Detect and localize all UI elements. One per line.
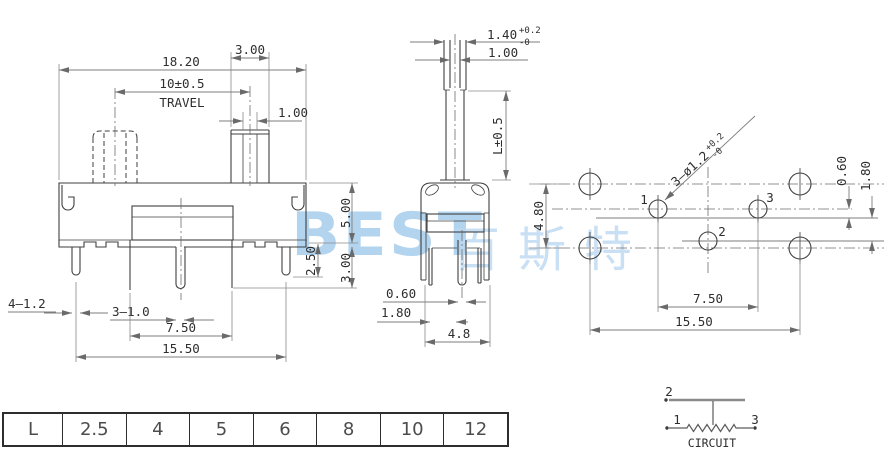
- dim-front-pin-outer-length: 2.50: [293, 244, 323, 277]
- callout-front-corner-pins: 4—1.2: [8, 296, 108, 313]
- slide-switch-dimension-drawing: BEST 百斯特: [0, 0, 888, 453]
- front-view: 18.20 3.00 10±0.5 TRAVEL 1.00: [8, 42, 358, 362]
- callout-front-middle-pins: 3—1.0: [110, 304, 214, 320]
- side-view: 1.40 +0.2 -0 1.00 L±0.5 0.60: [377, 26, 541, 347]
- dim-front-middle-pin-span-text: 7.50: [166, 320, 196, 335]
- dim-front-slot-width-text: 1.00: [278, 105, 308, 120]
- circuit-diagram: 2 1 3 CIRCUIT: [664, 384, 758, 450]
- pcb-pin1-label: 1: [640, 192, 648, 207]
- dim-front-corner-pin-span-text: 15.50: [162, 341, 200, 356]
- front-slider-block: [132, 206, 233, 240]
- dim-side-pin-width-text: 0.60: [386, 286, 416, 301]
- table-value-3: 5: [190, 414, 254, 445]
- dim-front-body-height-text: 5.00: [338, 198, 353, 228]
- dim-side-pin-offset: 1.80: [377, 305, 468, 322]
- front-knob: [231, 130, 269, 183]
- circuit-resistive-element: [669, 425, 753, 432]
- dim-side-stem-width-tol-upper: +0.2: [519, 26, 541, 36]
- pcb-terminal-holes: [649, 195, 767, 250]
- dim-pcb-offset-small: 0.60: [834, 156, 849, 230]
- pcb-pin3-label: 3: [766, 190, 774, 205]
- pcb-pin2-label: 2: [718, 224, 726, 239]
- dim-front-pin-inner-length: 3.00: [233, 247, 357, 288]
- pcb-view: 1 3 2 3—ø1.2 +0.2 -0 4.80 0.60: [529, 116, 884, 335]
- dim-side-pin-offset-text: 1.80: [381, 305, 411, 320]
- dim-side-body-depth: 4.8: [425, 285, 490, 347]
- dim-side-stem-height-text: L±0.5: [490, 117, 505, 155]
- circuit-caption: CIRCUIT: [688, 436, 737, 450]
- dim-side-stem-width: 1.40 +0.2 -0: [410, 26, 541, 48]
- front-left-pin: [72, 247, 80, 275]
- callout-front-middle-pins-text: 3—1.0: [112, 304, 150, 319]
- pcb-mounting-holes: [579, 168, 811, 264]
- front-body-outline: [59, 183, 306, 241]
- table-value-7: 12: [444, 414, 507, 445]
- dim-side-stem-slot-text: 1.00: [488, 45, 518, 60]
- callout-front-corner-pins-text: 4—1.2: [8, 296, 46, 311]
- dim-front-slot-width: 1.00: [219, 105, 308, 130]
- dim-side-stem-height: L±0.5: [468, 91, 511, 180]
- table-value-5: 8: [317, 414, 381, 445]
- dim-side-pin-width: 0.60: [383, 286, 486, 302]
- circuit-terminal-3-dot: [753, 426, 756, 429]
- dim-front-body-width-text: 18.20: [162, 54, 200, 69]
- circuit-terminal-3-label: 3: [751, 412, 759, 427]
- front-knob-phantom: [93, 131, 137, 183]
- dim-pcb-mount-span-text: 15.50: [675, 314, 713, 329]
- callout-pcb-hole-diameter-text: 3—ø1.2: [668, 148, 712, 189]
- dim-front-pin-outer-length-text: 2.50: [303, 246, 318, 276]
- callout-pcb-hole-diameter: 3—ø1.2 +0.2 -0: [665, 116, 755, 200]
- table-value-1: 2.5: [63, 414, 127, 445]
- front-right-pin: [282, 247, 290, 275]
- dim-side-stem-width-text: 1.40: [487, 27, 517, 42]
- dim-front-travel: 10±0.5 TRAVEL: [115, 76, 250, 110]
- table-header-L: L: [4, 414, 63, 445]
- dim-front-pin-inner-length-text: 3.00: [338, 253, 353, 283]
- table-value-6: 10: [381, 414, 445, 445]
- front-travel-label: TRAVEL: [159, 95, 204, 110]
- dim-front-body-height: 5.00: [309, 183, 358, 243]
- front-left-ear: [62, 185, 74, 210]
- dim-front-knob-width-text: 3.00: [235, 42, 265, 57]
- front-body-flange: [59, 240, 306, 247]
- circuit-terminal-2-label: 2: [665, 384, 673, 399]
- dim-pcb-offset-large-text: 1.80: [858, 161, 873, 191]
- dim-side-stem-slot: 1.00: [415, 45, 528, 60]
- dim-pcb-pin-span-text: 7.50: [693, 291, 723, 306]
- circuit-terminal-2-dot: [664, 398, 667, 401]
- dim-pcb-row-span: 4.80: [529, 184, 561, 248]
- dim-pcb-offset-small-text: 0.60: [834, 156, 849, 186]
- table-value-2: 4: [127, 414, 191, 445]
- engineering-drawing-canvas: 18.20 3.00 10±0.5 TRAVEL 1.00: [0, 0, 888, 453]
- length-size-table: L 2.5 4 5 6 8 10 12: [2, 412, 509, 447]
- dim-side-body-depth-text: 4.8: [448, 326, 471, 341]
- dim-front-travel-text: 10±0.5: [159, 76, 204, 91]
- front-center-pin: [176, 247, 185, 289]
- circuit-terminal-1-dot: [665, 426, 668, 429]
- side-body: [421, 183, 489, 285]
- front-right-ear: [292, 185, 304, 210]
- dim-pcb-row-span-text: 4.80: [531, 201, 546, 231]
- dim-side-stem-width-tol-lower: -0: [519, 38, 530, 48]
- table-value-4: 6: [254, 414, 318, 445]
- dim-pcb-offset-large: 1.80: [858, 161, 873, 254]
- circuit-terminal-1-label: 1: [673, 412, 681, 427]
